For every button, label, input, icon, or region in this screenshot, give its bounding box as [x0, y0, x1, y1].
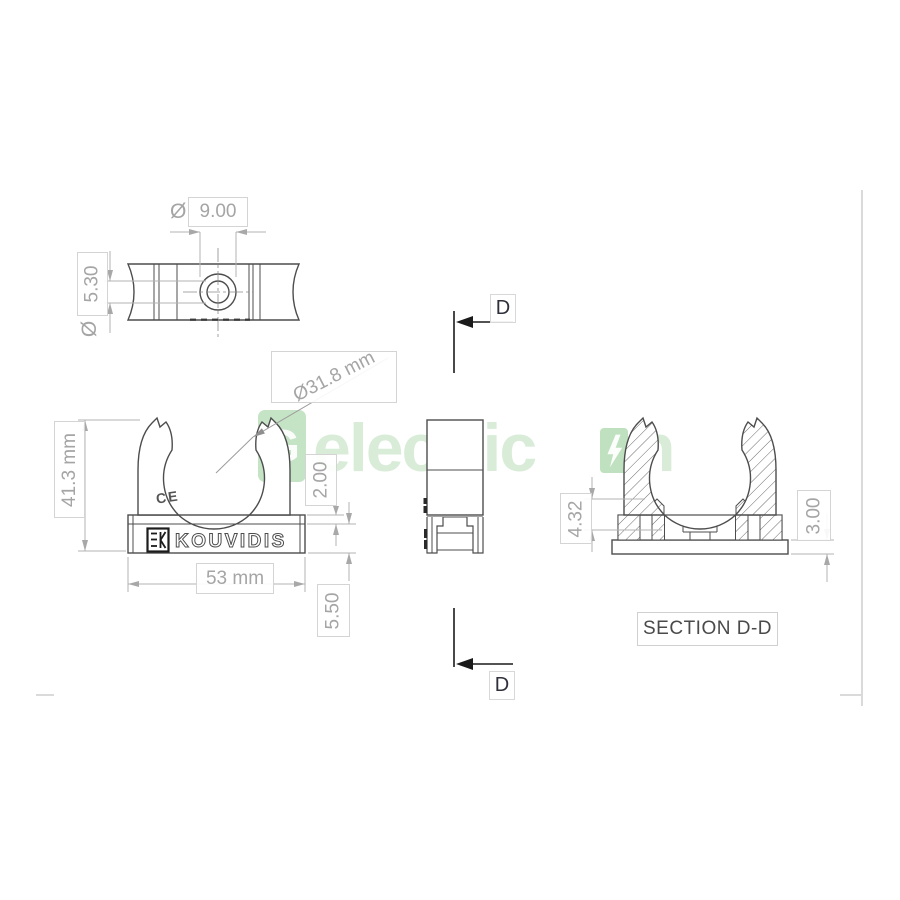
diameter-symbol-hole: Ø — [170, 200, 186, 224]
dim-label-rib-height: 4.32 — [560, 493, 592, 544]
dim-label-base-height: 5.50 — [317, 584, 350, 637]
cutting-plane-label-top: D — [490, 294, 516, 323]
section-title: SECTION D-D — [637, 612, 778, 646]
diameter-symbol-pin: Ø — [78, 321, 102, 337]
cutting-plane-bottom — [454, 608, 513, 670]
dim-label-width: 53 mm — [196, 563, 274, 594]
dim-label-opening-diameter: Ø31.8 mm — [271, 351, 397, 403]
cutting-plane-label-bottom: D — [489, 671, 515, 700]
brand-text: KOUVIDIS — [175, 531, 287, 552]
dim-label-pin-diameter: 5.30 — [77, 252, 108, 316]
dim-label-lip: 2.00 — [305, 454, 337, 506]
drawing-sheet: G electric n — [0, 0, 900, 900]
technical-drawing-canvas: KOUVIDIS — [0, 0, 900, 900]
dim-label-hole-diameter: 9.00 — [188, 197, 248, 227]
side-view — [424, 420, 484, 553]
kouvidis-ek-logo-icon — [148, 529, 169, 552]
top-view — [104, 229, 299, 338]
dim-label-plate-thickness: 3.00 — [797, 490, 831, 541]
ce-mark: CE — [155, 487, 180, 506]
dim-label-height: 41.3 mm — [54, 421, 85, 518]
